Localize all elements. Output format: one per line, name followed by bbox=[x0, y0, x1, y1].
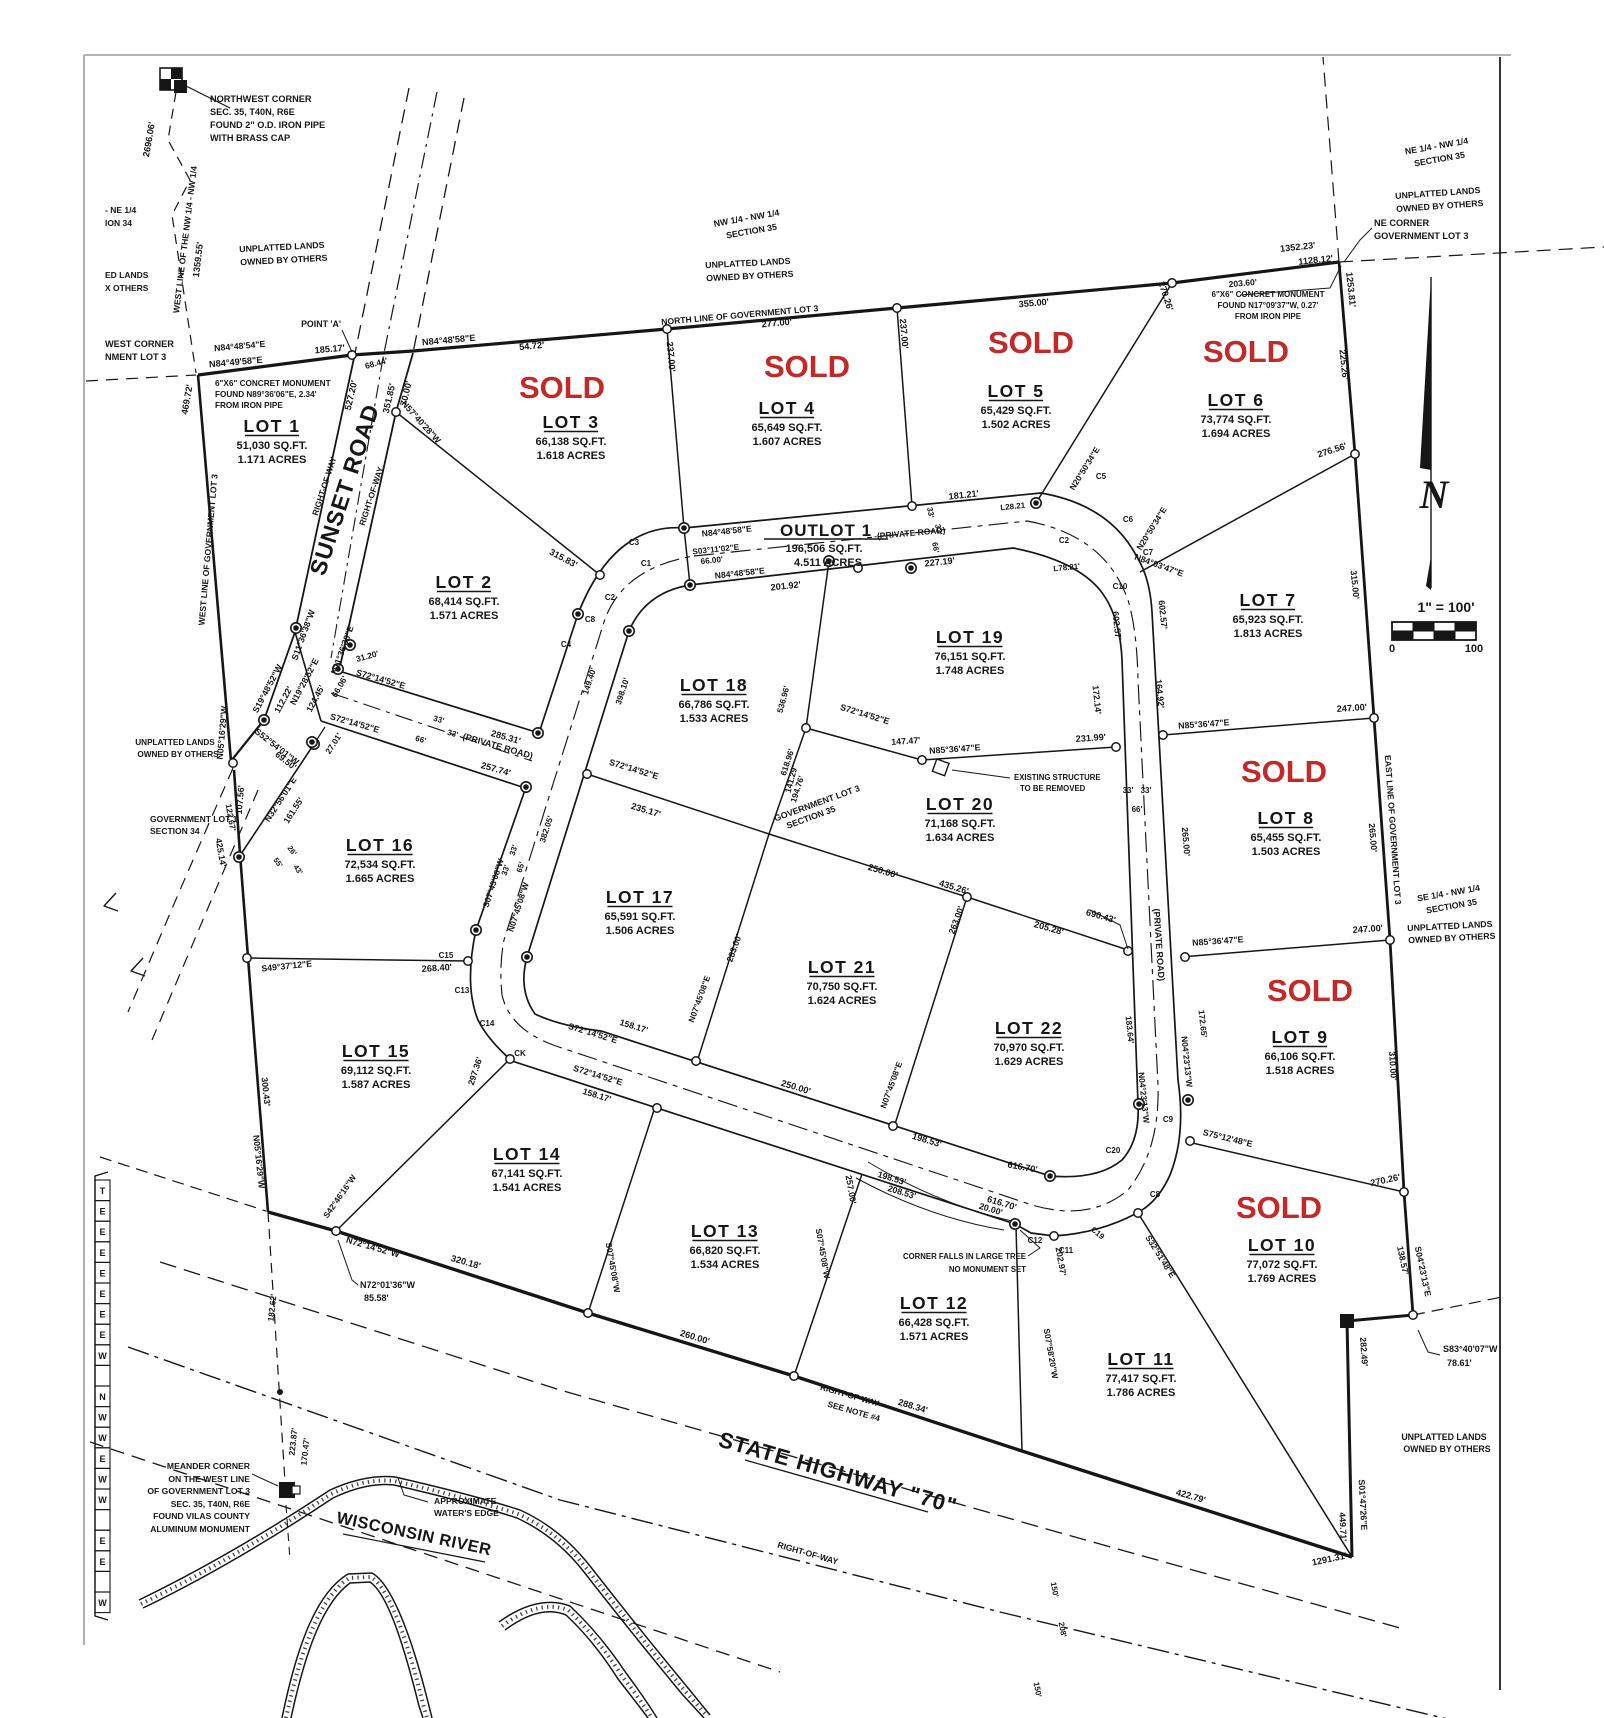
svg-text:C8: C8 bbox=[585, 615, 596, 624]
svg-text:247.00': 247.00' bbox=[1336, 702, 1367, 714]
svg-text:33': 33' bbox=[933, 523, 944, 535]
svg-text:65,429 SQ.FT.: 65,429 SQ.FT. bbox=[981, 405, 1052, 417]
svg-text:70,750 SQ.FT.: 70,750 SQ.FT. bbox=[807, 981, 878, 993]
svg-text:CK: CK bbox=[514, 1049, 526, 1058]
svg-text:E: E bbox=[99, 1207, 105, 1217]
svg-text:LOT 5: LOT 5 bbox=[987, 381, 1044, 401]
svg-text:33': 33' bbox=[1123, 786, 1134, 795]
svg-text:LOT 21: LOT 21 bbox=[808, 957, 876, 977]
svg-text:E: E bbox=[99, 1248, 105, 1258]
svg-text:T: T bbox=[100, 1186, 106, 1196]
svg-text:LOT 8: LOT 8 bbox=[1257, 808, 1314, 828]
svg-text:ED LANDS: ED LANDS bbox=[105, 270, 149, 280]
svg-text:6"X6" CONCRET MONUMENT: 6"X6" CONCRET MONUMENT bbox=[215, 379, 331, 388]
svg-text:LOT 20: LOT 20 bbox=[926, 794, 994, 814]
svg-text:72,534 SQ.FT.: 72,534 SQ.FT. bbox=[345, 859, 416, 871]
svg-text:SOLD: SOLD bbox=[519, 370, 605, 405]
svg-text:FROM IRON PIPE: FROM IRON PIPE bbox=[1235, 312, 1302, 321]
svg-text:65,591 SQ.FT.: 65,591 SQ.FT. bbox=[605, 911, 676, 923]
svg-text:LOT 12: LOT 12 bbox=[900, 1293, 968, 1313]
svg-text:1.506 ACRES: 1.506 ACRES bbox=[606, 925, 675, 937]
svg-text:1.502 ACRES: 1.502 ACRES bbox=[982, 419, 1051, 431]
svg-text:78.61': 78.61' bbox=[1447, 1358, 1472, 1368]
svg-text:LOT 10: LOT 10 bbox=[1248, 1235, 1316, 1255]
svg-text:1.629 ACRES: 1.629 ACRES bbox=[995, 1056, 1064, 1068]
svg-text:LOT 16: LOT 16 bbox=[346, 835, 414, 855]
svg-text:E: E bbox=[99, 1536, 105, 1546]
svg-text:SOLD: SOLD bbox=[1267, 973, 1353, 1008]
svg-text:100: 100 bbox=[1465, 643, 1483, 655]
svg-text:W: W bbox=[98, 1351, 107, 1361]
svg-text:LOT 13: LOT 13 bbox=[691, 1221, 759, 1241]
svg-text:51,030 SQ.FT.: 51,030 SQ.FT. bbox=[237, 440, 308, 452]
svg-text:66,106 SQ.FT.: 66,106 SQ.FT. bbox=[1265, 1051, 1336, 1063]
svg-text:68,414 SQ.FT.: 68,414 SQ.FT. bbox=[429, 596, 500, 608]
svg-text:LOT 14: LOT 14 bbox=[493, 1144, 561, 1164]
svg-text:70,970 SQ.FT.: 70,970 SQ.FT. bbox=[994, 1042, 1065, 1054]
svg-text:1.587 ACRES: 1.587 ACRES bbox=[342, 1079, 411, 1091]
svg-text:SOLD: SOLD bbox=[1241, 754, 1327, 789]
svg-text:SOLD: SOLD bbox=[1203, 334, 1289, 369]
svg-text:OWNED BY OTHERS: OWNED BY OTHERS bbox=[137, 750, 219, 759]
svg-text:66,820 SQ.FT.: 66,820 SQ.FT. bbox=[690, 1245, 761, 1257]
svg-text:APPROXIMATE: APPROXIMATE bbox=[434, 1496, 497, 1506]
svg-text:310.00': 310.00' bbox=[1387, 1051, 1399, 1081]
svg-text:NMENT LOT 3: NMENT LOT 3 bbox=[105, 352, 166, 362]
svg-text:1.533 ACRES: 1.533 ACRES bbox=[680, 713, 749, 725]
svg-text:LOT 17: LOT 17 bbox=[606, 887, 674, 907]
svg-text:LOT 1: LOT 1 bbox=[243, 416, 300, 436]
svg-text:E: E bbox=[99, 1227, 105, 1237]
svg-text:1.694 ACRES: 1.694 ACRES bbox=[1202, 428, 1271, 440]
svg-text:- NE 1/4: - NE 1/4 bbox=[105, 205, 136, 215]
svg-text:GOVERNMENT LOT 1: GOVERNMENT LOT 1 bbox=[150, 814, 238, 824]
svg-text:E: E bbox=[99, 1454, 105, 1464]
svg-text:73,774 SQ.FT.: 73,774 SQ.FT. bbox=[1201, 414, 1272, 426]
svg-text:67,141 SQ.FT.: 67,141 SQ.FT. bbox=[492, 1168, 563, 1180]
svg-text:66': 66' bbox=[1132, 805, 1143, 814]
svg-text:C4: C4 bbox=[561, 640, 572, 649]
svg-text:E: E bbox=[99, 1289, 105, 1299]
svg-text:POINT 'A': POINT 'A' bbox=[301, 319, 341, 329]
svg-text:1.769 ACRES: 1.769 ACRES bbox=[1248, 1273, 1317, 1285]
svg-text:E: E bbox=[99, 1330, 105, 1340]
svg-text:NE CORNER: NE CORNER bbox=[1374, 218, 1429, 228]
svg-text:LOT 18: LOT 18 bbox=[680, 675, 748, 695]
svg-text:OUTLOT 1: OUTLOT 1 bbox=[780, 521, 872, 540]
svg-text:1.634 ACRES: 1.634 ACRES bbox=[926, 832, 995, 844]
svg-text:65,455 SQ.FT.: 65,455 SQ.FT. bbox=[1251, 832, 1322, 844]
svg-text:77,417 SQ.FT.: 77,417 SQ.FT. bbox=[1106, 1373, 1177, 1385]
svg-text:E: E bbox=[99, 1557, 105, 1567]
svg-text:LOT 11: LOT 11 bbox=[1107, 1349, 1174, 1369]
svg-text:C13: C13 bbox=[455, 986, 470, 995]
svg-text:E: E bbox=[99, 1268, 105, 1278]
svg-text:WEST CORNER: WEST CORNER bbox=[105, 339, 174, 349]
svg-text:S83°40'07"W: S83°40'07"W bbox=[1443, 1344, 1498, 1354]
svg-text:C14: C14 bbox=[480, 1019, 495, 1028]
svg-text:NO MONUMENT SET: NO MONUMENT SET bbox=[949, 1265, 1026, 1274]
svg-text:247.00': 247.00' bbox=[1352, 923, 1383, 935]
svg-text:CORNER FALLS IN LARGE TREE: CORNER FALLS IN LARGE TREE bbox=[903, 1252, 1026, 1261]
svg-text:LOT 4: LOT 4 bbox=[758, 398, 815, 418]
svg-text:X OTHERS: X OTHERS bbox=[105, 283, 149, 293]
svg-text:1.571 ACRES: 1.571 ACRES bbox=[900, 1331, 969, 1343]
svg-text:E: E bbox=[99, 1310, 105, 1320]
svg-text:66,428 SQ.FT.: 66,428 SQ.FT. bbox=[899, 1317, 970, 1329]
svg-text:FOUND VILAS COUNTY: FOUND VILAS COUNTY bbox=[153, 1511, 250, 1521]
svg-text:282.49': 282.49' bbox=[1358, 1337, 1370, 1367]
svg-text:147.47': 147.47' bbox=[891, 735, 921, 747]
svg-text:1.518 ACRES: 1.518 ACRES bbox=[1266, 1065, 1335, 1077]
svg-text:268.40': 268.40' bbox=[421, 962, 452, 974]
svg-text:C1: C1 bbox=[641, 559, 652, 568]
svg-text:SOLD: SOLD bbox=[764, 349, 850, 384]
svg-text:77,072 SQ.FT.: 77,072 SQ.FT. bbox=[1247, 1259, 1318, 1271]
svg-text:4.511 ACRES: 4.511 ACRES bbox=[794, 557, 862, 569]
svg-text:C20: C20 bbox=[1106, 1146, 1121, 1155]
svg-text:1.541 ACRES: 1.541 ACRES bbox=[493, 1182, 562, 1194]
svg-text:C3: C3 bbox=[629, 538, 640, 547]
svg-text:C6: C6 bbox=[1123, 515, 1134, 524]
svg-text:1.503 ACRES: 1.503 ACRES bbox=[1252, 846, 1321, 858]
svg-text:C5: C5 bbox=[1096, 472, 1107, 481]
svg-text:TO BE REMOVED: TO BE REMOVED bbox=[1020, 784, 1086, 793]
svg-text:C2: C2 bbox=[605, 593, 616, 602]
svg-text:449.71': 449.71' bbox=[1337, 1512, 1349, 1541]
svg-text:LOT 9: LOT 9 bbox=[1271, 1027, 1328, 1047]
svg-text:1.624 ACRES: 1.624 ACRES bbox=[808, 995, 877, 1007]
svg-text:W: W bbox=[98, 1474, 107, 1484]
svg-text:ION 34: ION 34 bbox=[105, 218, 132, 228]
svg-text:1.786 ACRES: 1.786 ACRES bbox=[1107, 1387, 1176, 1399]
svg-text:1.607 ACRES: 1.607 ACRES bbox=[753, 436, 822, 448]
svg-text:65,923 SQ.FT.: 65,923 SQ.FT. bbox=[1233, 614, 1304, 626]
svg-text:W: W bbox=[98, 1413, 107, 1423]
svg-text:WITH BRASS CAP: WITH BRASS CAP bbox=[210, 133, 290, 143]
svg-text:LOT 7: LOT 7 bbox=[1239, 590, 1296, 610]
svg-text:66,138 SQ.FT.: 66,138 SQ.FT. bbox=[536, 436, 607, 448]
svg-text:196,506 SQ.FT.: 196,506 SQ.FT. bbox=[785, 543, 862, 555]
svg-text:FOUND N89°36'06"E, 2.34': FOUND N89°36'06"E, 2.34' bbox=[215, 390, 317, 399]
svg-text:0: 0 bbox=[1389, 643, 1395, 655]
svg-text:FOUND 2" O.D. IRON PIPE: FOUND 2" O.D. IRON PIPE bbox=[210, 120, 325, 130]
svg-text:LOT 2: LOT 2 bbox=[435, 572, 492, 592]
svg-text:76,151 SQ.FT.: 76,151 SQ.FT. bbox=[935, 651, 1006, 663]
svg-text:UNPLATTED LANDS: UNPLATTED LANDS bbox=[1401, 1432, 1486, 1442]
svg-text:1" = 100': 1" = 100' bbox=[1417, 599, 1474, 615]
svg-text:LOT 6: LOT 6 bbox=[1207, 390, 1264, 410]
svg-text:MEANDER CORNER: MEANDER CORNER bbox=[167, 1461, 251, 1471]
svg-text:SECTION 34: SECTION 34 bbox=[150, 826, 200, 836]
svg-text:EXISTING STRUCTURE: EXISTING STRUCTURE bbox=[1014, 773, 1101, 782]
svg-text:W: W bbox=[98, 1433, 107, 1443]
svg-text:69,112 SQ.FT.: 69,112 SQ.FT. bbox=[341, 1065, 411, 1077]
svg-text:SOLD: SOLD bbox=[1236, 1190, 1322, 1225]
svg-text:1.748 ACRES: 1.748 ACRES bbox=[936, 665, 1005, 677]
svg-text:85.58': 85.58' bbox=[364, 1293, 389, 1303]
svg-text:GOVERNMENT LOT 3: GOVERNMENT LOT 3 bbox=[1374, 231, 1468, 241]
svg-text:C9: C9 bbox=[1163, 1115, 1174, 1124]
svg-text:ON THE WEST LINE: ON THE WEST LINE bbox=[168, 1474, 250, 1484]
svg-text:WATER'S EDGE: WATER'S EDGE bbox=[434, 1508, 499, 1518]
svg-text:66': 66' bbox=[930, 541, 941, 553]
svg-text:1.618 ACRES: 1.618 ACRES bbox=[537, 450, 606, 462]
svg-text:C10: C10 bbox=[1113, 582, 1128, 591]
svg-text:C2: C2 bbox=[1059, 536, 1070, 545]
svg-text:1.534 ACRES: 1.534 ACRES bbox=[691, 1259, 760, 1271]
svg-text:66,786 SQ.FT.: 66,786 SQ.FT. bbox=[679, 699, 750, 711]
svg-text:C15: C15 bbox=[439, 951, 454, 960]
svg-text:FROM IRON PIPE: FROM IRON PIPE bbox=[215, 401, 283, 410]
svg-text:1.665 ACRES: 1.665 ACRES bbox=[346, 873, 415, 885]
svg-text:SOLD: SOLD bbox=[988, 325, 1074, 360]
svg-text:N72°01'36"W: N72°01'36"W bbox=[360, 1280, 416, 1290]
svg-text:W: W bbox=[98, 1495, 107, 1505]
svg-text:OWNED BY OTHERS: OWNED BY OTHERS bbox=[1403, 1444, 1490, 1454]
svg-text:231.99': 231.99' bbox=[1075, 732, 1106, 744]
svg-text:65,649 SQ.FT.: 65,649 SQ.FT. bbox=[752, 422, 823, 434]
svg-text:6"X6" CONCRET MONUMENT: 6"X6" CONCRET MONUMENT bbox=[1212, 290, 1325, 299]
svg-text:SEC. 35, T40N, R6E: SEC. 35, T40N, R6E bbox=[210, 107, 295, 117]
svg-text:N: N bbox=[1419, 472, 1451, 517]
svg-text:UNPLATTED LANDS: UNPLATTED LANDS bbox=[135, 738, 215, 747]
svg-text:NORTHWEST CORNER: NORTHWEST CORNER bbox=[210, 94, 312, 104]
svg-text:LOT 15: LOT 15 bbox=[342, 1041, 410, 1061]
svg-text:71,168 SQ.FT.: 71,168 SQ.FT. bbox=[925, 818, 996, 830]
svg-text:1.171 ACRES: 1.171 ACRES bbox=[238, 454, 307, 466]
svg-text:FOUND N17°09'37"W, 0.27': FOUND N17°09'37"W, 0.27' bbox=[1217, 301, 1318, 310]
svg-text:LOT 19: LOT 19 bbox=[936, 627, 1004, 647]
svg-text:W: W bbox=[98, 1598, 107, 1608]
svg-text:LOT 3: LOT 3 bbox=[542, 412, 599, 432]
svg-text:33': 33' bbox=[1141, 786, 1152, 795]
svg-text:LOT 22: LOT 22 bbox=[995, 1018, 1063, 1038]
svg-text:ALUMINUM MONUMENT: ALUMINUM MONUMENT bbox=[150, 1524, 251, 1534]
svg-text:33': 33' bbox=[925, 506, 936, 518]
svg-text:C8: C8 bbox=[1150, 1190, 1161, 1199]
svg-text:OF GOVERNMENT LOT 3: OF GOVERNMENT LOT 3 bbox=[147, 1486, 250, 1496]
svg-text:SEC. 35, T40N, R6E: SEC. 35, T40N, R6E bbox=[171, 1499, 251, 1509]
svg-text:1.571 ACRES: 1.571 ACRES bbox=[430, 610, 499, 622]
svg-text:1.813 ACRES: 1.813 ACRES bbox=[1234, 628, 1303, 640]
svg-text:N: N bbox=[99, 1392, 106, 1402]
